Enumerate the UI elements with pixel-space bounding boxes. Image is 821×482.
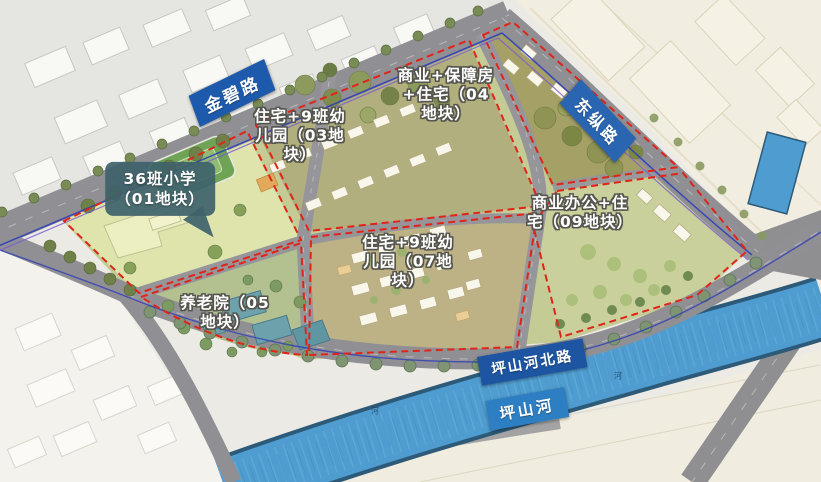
site-plan-rendering	[0, 0, 821, 482]
site-plan-map: 36班小学 （01地块） 住宅+9班幼 儿园（03地 块） 商业+保障房 +住宅…	[0, 0, 821, 482]
